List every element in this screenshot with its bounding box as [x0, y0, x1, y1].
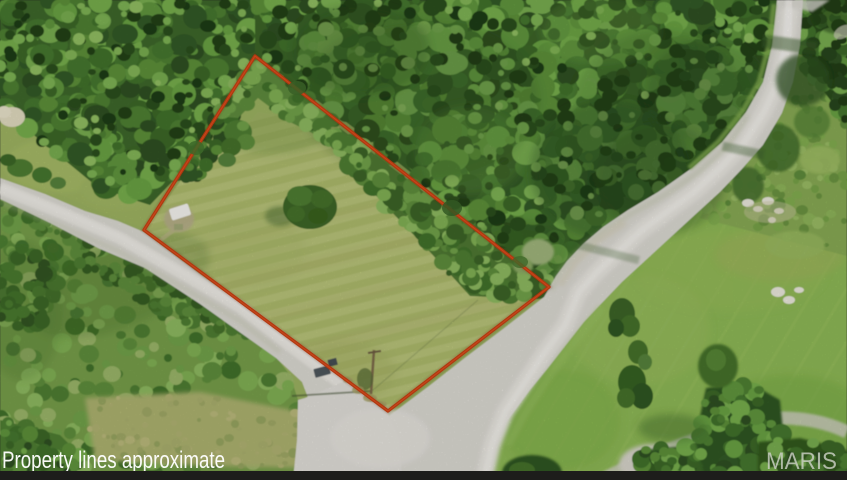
svg-text:MARIS: MARIS [766, 448, 837, 475]
svg-text:Property lines approximate: Property lines approximate [2, 447, 225, 474]
